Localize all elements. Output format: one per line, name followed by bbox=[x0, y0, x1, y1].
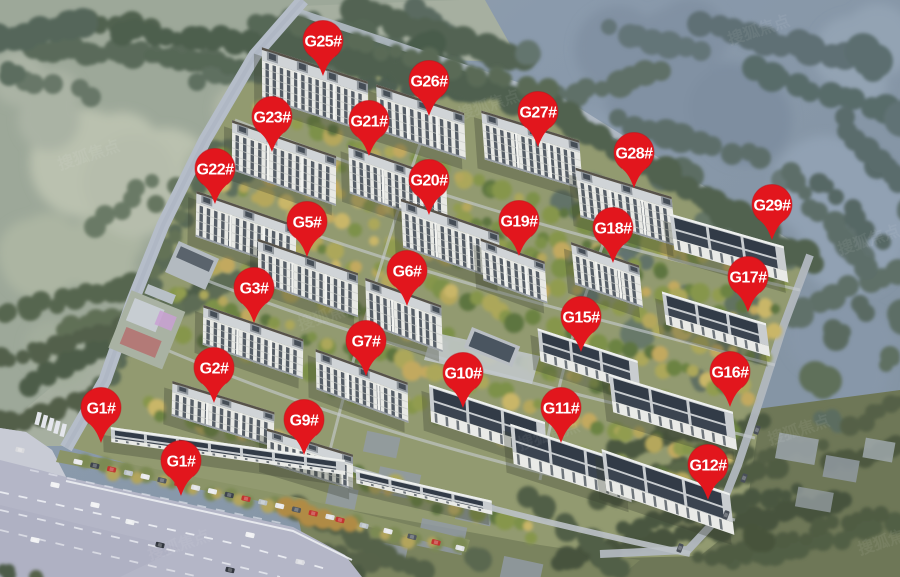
svg-text:G10#: G10# bbox=[444, 366, 482, 383]
svg-text:G25#: G25# bbox=[304, 34, 342, 51]
svg-text:G5#: G5# bbox=[293, 215, 322, 232]
svg-text:G3#: G3# bbox=[240, 281, 269, 298]
svg-text:G22#: G22# bbox=[196, 162, 234, 179]
svg-text:G19#: G19# bbox=[500, 214, 538, 231]
svg-text:G27#: G27# bbox=[519, 105, 557, 122]
svg-text:G12#: G12# bbox=[689, 458, 727, 475]
svg-text:G2#: G2# bbox=[200, 361, 229, 378]
svg-text:G9#: G9# bbox=[290, 413, 319, 430]
svg-text:G16#: G16# bbox=[711, 365, 749, 382]
svg-text:G11#: G11# bbox=[543, 401, 580, 418]
svg-text:G7#: G7# bbox=[352, 334, 381, 351]
svg-text:G1#: G1# bbox=[87, 401, 116, 418]
svg-text:G1#: G1# bbox=[167, 454, 196, 471]
svg-text:G28#: G28# bbox=[615, 146, 653, 163]
svg-text:G20#: G20# bbox=[410, 173, 448, 190]
svg-text:G18#: G18# bbox=[594, 221, 632, 238]
svg-text:G21#: G21# bbox=[350, 114, 388, 131]
svg-text:G29#: G29# bbox=[753, 198, 791, 215]
svg-text:G17#: G17# bbox=[729, 270, 767, 287]
svg-text:G26#: G26# bbox=[410, 74, 448, 91]
svg-text:G15#: G15# bbox=[562, 310, 600, 327]
svg-text:G23#: G23# bbox=[253, 110, 291, 127]
svg-text:G6#: G6# bbox=[393, 264, 422, 281]
